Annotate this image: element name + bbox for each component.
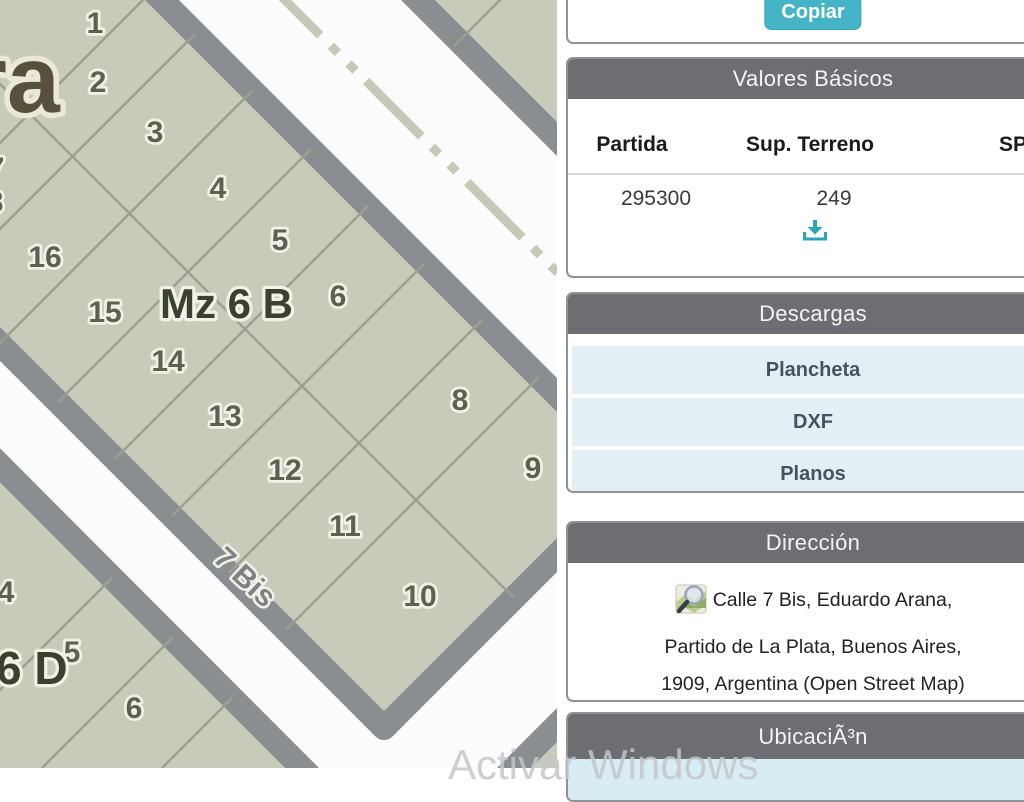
descargas-item-planos[interactable]: Planos: [572, 450, 1024, 493]
parcel-label: 15: [88, 296, 121, 329]
parcel-label: 13: [208, 400, 241, 433]
parcel-label: 1: [87, 7, 104, 40]
parcel-label: 8: [0, 186, 3, 219]
parcel-label: ra: [0, 27, 61, 133]
parcel-label: 6 D: [0, 642, 68, 694]
descargas-header: Descargas: [568, 294, 1024, 334]
ubicacion-panel: UbicaciÃ³n: [566, 712, 1024, 802]
parcel-label: 10: [403, 580, 436, 613]
cadastral-map-svg: 123456891615141312111045678Mz 6 B6 D7 Bi…: [0, 0, 557, 768]
parcel-label: 4: [210, 172, 227, 205]
parcel-label: 2: [90, 66, 107, 99]
parcel-label: 14: [151, 345, 185, 378]
address-line-3: 1909, Argentina (Open Street Map): [568, 666, 1024, 702]
parcel-label: 16: [28, 241, 61, 274]
parcel-label: 3: [147, 116, 164, 149]
valores-table-header-row: Partida Sup. Terreno SP: [568, 133, 1024, 157]
parcel-label: 6: [330, 280, 347, 313]
ubicacion-header: UbicaciÃ³n: [568, 714, 1024, 759]
column-sp: SP: [924, 133, 1024, 157]
parcel-label: 7: [0, 152, 4, 185]
descargas-item-dxf[interactable]: DXF: [572, 398, 1024, 446]
cell-partida: 295300: [592, 187, 720, 211]
table-divider: [568, 173, 1024, 175]
direccion-header: Dirección: [568, 523, 1024, 563]
osm-map-icon: [674, 582, 708, 629]
copiar-button[interactable]: Copiar: [764, 0, 861, 30]
parcel-label: Mz 6 B: [160, 280, 293, 327]
direccion-panel: Dirección Calle 7 Bis, Eduardo Arana, Pa…: [566, 521, 1024, 702]
valores-basicos-header: Valores Básicos: [568, 59, 1024, 99]
cell-sp: [948, 187, 1024, 211]
cadastral-map[interactable]: 123456891615141312111045678Mz 6 B6 D7 Bi…: [0, 0, 557, 768]
copy-panel: Copiar: [566, 0, 1024, 44]
descargas-panel: Descargas Plancheta DXF Planos: [566, 292, 1024, 493]
parcel-label: 5: [272, 224, 289, 257]
descargas-list: Plancheta DXF Planos: [568, 334, 1024, 493]
cell-sup-terreno: 249: [720, 187, 948, 211]
parcel-label: 4: [0, 576, 15, 609]
parcel-label: 9: [525, 452, 542, 485]
descargas-item-plancheta[interactable]: Plancheta: [572, 346, 1024, 394]
parcel-label: 8: [452, 384, 469, 417]
valores-table-row: 295300 249: [568, 187, 1024, 211]
address-text: Calle 7 Bis, Eduardo Arana, Partido de L…: [568, 563, 1024, 702]
parcel-label: 11: [329, 510, 361, 543]
column-sup-terreno: Sup. Terreno: [696, 133, 924, 157]
address-line-1: Calle 7 Bis, Eduardo Arana,: [568, 582, 1024, 629]
ubicacion-body: [568, 759, 1024, 802]
parcel-label: 6: [126, 692, 143, 725]
valores-basicos-panel: Valores Básicos Partida Sup. Terreno SP …: [566, 57, 1024, 278]
column-partida: Partida: [568, 133, 696, 157]
parcel-label: 12: [268, 454, 301, 487]
download-icon[interactable]: [802, 219, 1024, 246]
address-line-2: Partido de La Plata, Buenos Aires,: [568, 629, 1024, 666]
